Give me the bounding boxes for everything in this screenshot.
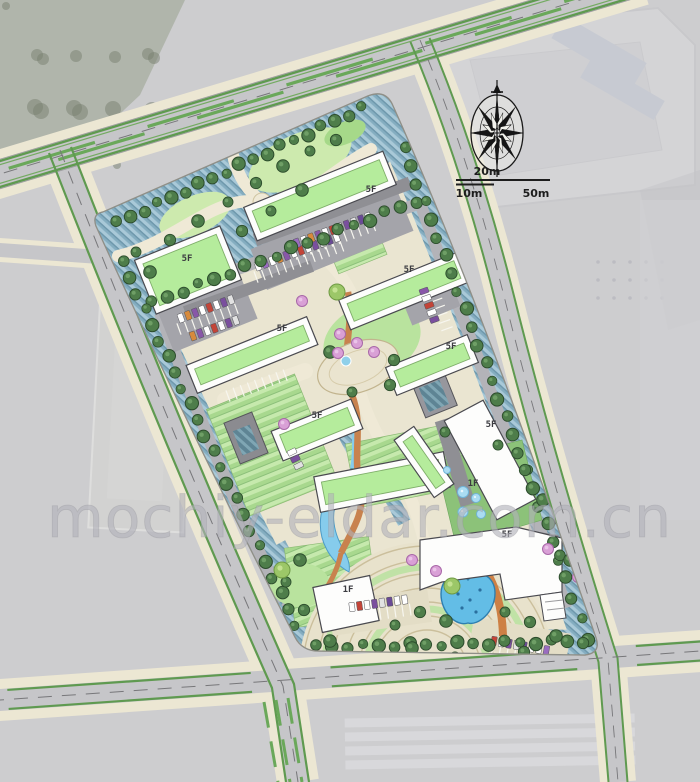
site-plan-map: 5F 5F 5F 5F 5F 5F 5F 5F 1F 1F 20m 10m 50… [0,0,700,782]
building-label: 5F [182,254,193,264]
building-label: 5F [312,411,323,421]
site-plan-screenshot: 5F 5F 5F 5F 5F 5F 5F 5F 1F 1F 20m 10m 50… [0,0,700,782]
building-label: 5F [486,420,497,430]
building-label: 5F [277,324,288,334]
scale-label-20m: 20m [474,165,501,178]
scale-label-10m: 10m [456,187,483,200]
watermark-text: mochiy-eldar.com.cn [47,485,672,551]
building-label: 5F [446,342,457,352]
building-label: 5F [366,185,377,195]
building-label: 5F [404,265,415,275]
scale-label-50m: 50m [523,187,550,200]
parking-ramp [540,592,566,621]
building-label: 1F [343,585,354,595]
fountain [341,356,351,366]
